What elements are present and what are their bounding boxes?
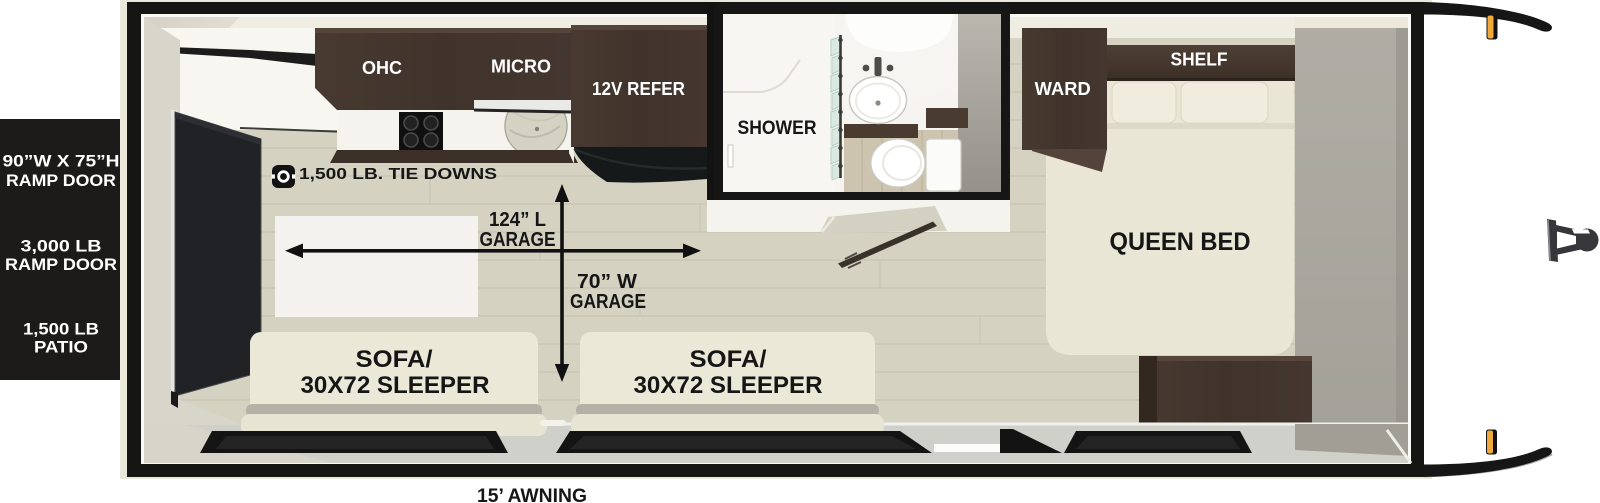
- svg-text:1,500 LB: 1,500 LB: [23, 320, 99, 339]
- svg-text:WARD: WARD: [1035, 79, 1091, 99]
- svg-text:3,000 LB: 3,000 LB: [21, 237, 102, 256]
- svg-text:12V REFER: 12V REFER: [592, 79, 685, 99]
- svg-text:GARAGE: GARAGE: [570, 291, 646, 313]
- svg-text:GARAGE: GARAGE: [480, 229, 556, 251]
- svg-text:PATIO: PATIO: [34, 338, 88, 357]
- svg-text:15’ AWNING: 15’ AWNING: [477, 486, 587, 503]
- svg-text:RAMP DOOR: RAMP DOOR: [6, 171, 116, 190]
- svg-text:70” W: 70” W: [577, 271, 637, 293]
- svg-text:1,500 LB. TIE DOWNS: 1,500 LB. TIE DOWNS: [299, 166, 497, 183]
- svg-text:MICRO: MICRO: [491, 57, 551, 77]
- svg-text:SOFA/: SOFA/: [690, 346, 767, 373]
- svg-text:124” L: 124” L: [489, 209, 546, 231]
- svg-text:SOFA/: SOFA/: [356, 346, 433, 373]
- svg-text:90”W X 75”H: 90”W X 75”H: [3, 152, 120, 171]
- svg-text:SHOWER: SHOWER: [738, 118, 817, 139]
- svg-text:SHELF: SHELF: [1171, 50, 1228, 70]
- svg-text:30X72 SLEEPER: 30X72 SLEEPER: [301, 372, 490, 399]
- svg-text:OHC: OHC: [362, 58, 402, 78]
- svg-text:QUEEN BED: QUEEN BED: [1110, 228, 1251, 256]
- svg-text:RAMP DOOR: RAMP DOOR: [5, 255, 117, 274]
- svg-text:30X72 SLEEPER: 30X72 SLEEPER: [634, 372, 823, 399]
